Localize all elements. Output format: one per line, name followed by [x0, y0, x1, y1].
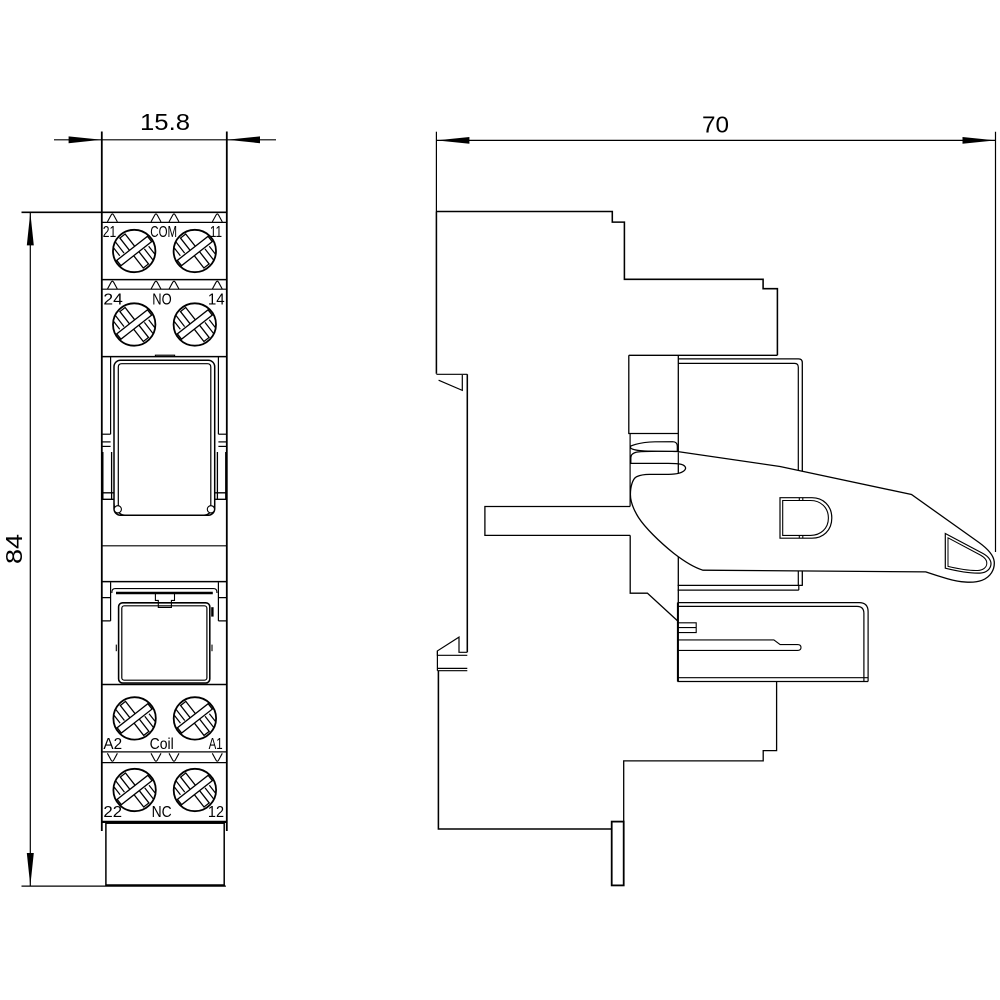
svg-text:70: 70	[702, 112, 729, 138]
svg-text:COM: COM	[150, 224, 177, 241]
svg-text:A2: A2	[103, 736, 122, 753]
svg-text:Coil: Coil	[150, 736, 174, 753]
svg-text:15.8: 15.8	[140, 109, 190, 135]
svg-text:NO: NO	[152, 291, 171, 308]
svg-text:NC: NC	[152, 804, 172, 821]
svg-text:14: 14	[208, 291, 225, 308]
svg-text:A1: A1	[209, 736, 223, 753]
svg-text:24: 24	[103, 291, 123, 308]
svg-text:12: 12	[208, 804, 224, 821]
svg-text:84: 84	[1, 534, 27, 564]
svg-text:21: 21	[103, 224, 117, 241]
svg-text:22: 22	[103, 804, 122, 821]
